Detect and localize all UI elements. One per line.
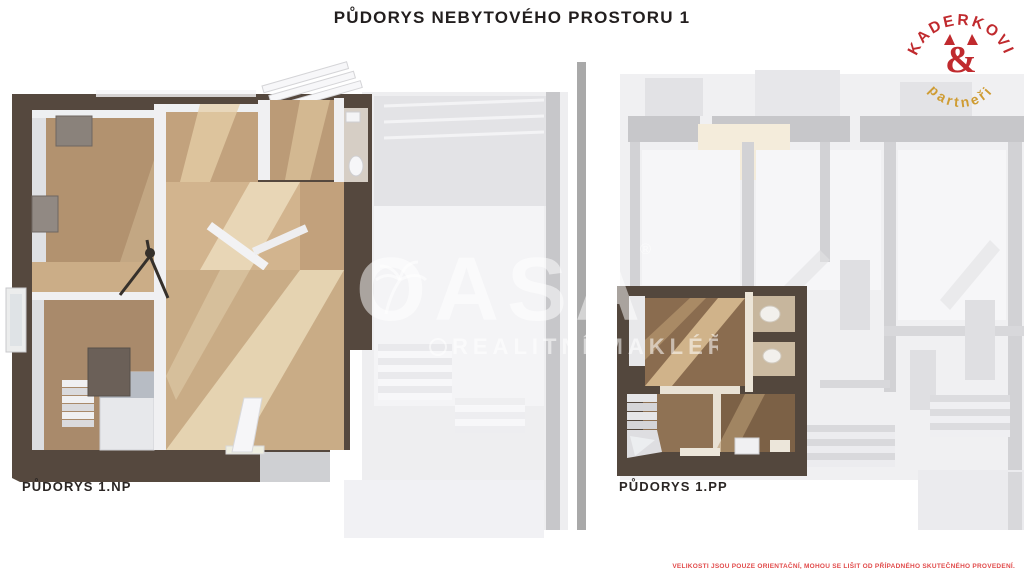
- faded-stairs-right-2: [930, 395, 1010, 437]
- dark-cabinet: [88, 348, 130, 396]
- wardrobe: [56, 116, 92, 146]
- plan-label-1pp: PŮDORYS 1.PP: [619, 479, 728, 494]
- floorplan-1pp: [617, 286, 807, 476]
- logo-arc-bottom-text: partneři: [926, 82, 997, 111]
- toilet: [349, 156, 363, 176]
- logo-ampersand: &: [945, 39, 977, 81]
- floorplan-1np: [6, 60, 372, 482]
- page-title: PŮDORYS NEBYTOVÉHO PROSTORU 1: [0, 8, 1024, 28]
- sink: [346, 112, 360, 122]
- faded-stairs-flight-1: [378, 344, 452, 400]
- winder-stairs: [627, 394, 662, 458]
- floorplan-scene: [0, 0, 1024, 576]
- cat-ampersand-icon: &: [944, 34, 978, 81]
- toilet: [763, 349, 781, 363]
- size-disclaimer: VELIKOSTI JSOU POUZE ORIENTAČNÍ, MOHOU S…: [672, 563, 1015, 570]
- cabinet: [32, 196, 58, 232]
- faded-stairs-flight-2: [455, 398, 525, 433]
- svg-text:partneři: partneři: [926, 82, 997, 111]
- divider-bar: [577, 62, 586, 530]
- kaderkovi-logo: KADERKOVI partneři &: [898, 0, 1024, 118]
- plan-label-1np: PŮDORYS 1.NP: [22, 479, 132, 494]
- toilet: [760, 306, 780, 322]
- left-plan-faded-stairwell: [344, 92, 568, 538]
- window: [6, 288, 26, 352]
- faded-stairs-right-1: [800, 425, 895, 467]
- washing-machine: [735, 438, 759, 454]
